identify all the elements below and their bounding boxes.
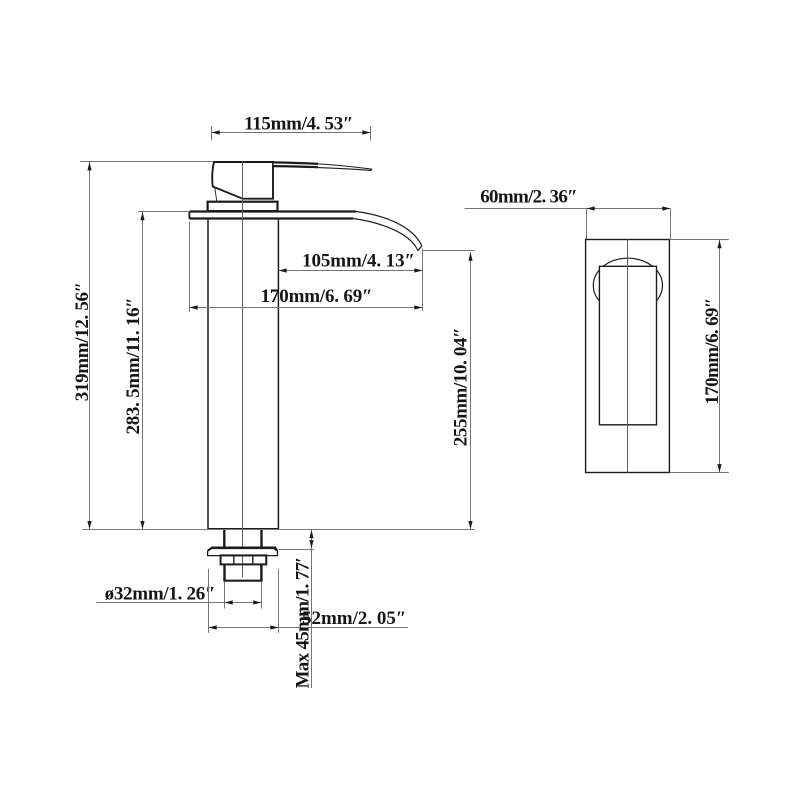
svg-text:319mm/12. 56″: 319mm/12. 56″ [72, 282, 93, 401]
svg-text:170mm/6. 69″: 170mm/6. 69″ [702, 298, 723, 404]
svg-text:60mm/2. 36″: 60mm/2. 36″ [480, 186, 577, 207]
svg-text:ø32mm/1. 26″: ø32mm/1. 26″ [105, 584, 216, 605]
svg-text:255mm/10. 04″: 255mm/10. 04″ [451, 328, 472, 447]
svg-text:115mm/4. 53″: 115mm/4. 53″ [244, 113, 353, 134]
svg-text:105mm/4. 13″: 105mm/4. 13″ [302, 250, 415, 271]
svg-text:170mm/6. 69″: 170mm/6. 69″ [261, 286, 373, 307]
svg-text:52mm/2. 05″: 52mm/2. 05″ [302, 608, 406, 629]
svg-text:Max 45mm/1. 77′: Max 45mm/1. 77′ [292, 558, 313, 689]
svg-text:283. 5mm/11. 16″: 283. 5mm/11. 16″ [123, 297, 144, 434]
